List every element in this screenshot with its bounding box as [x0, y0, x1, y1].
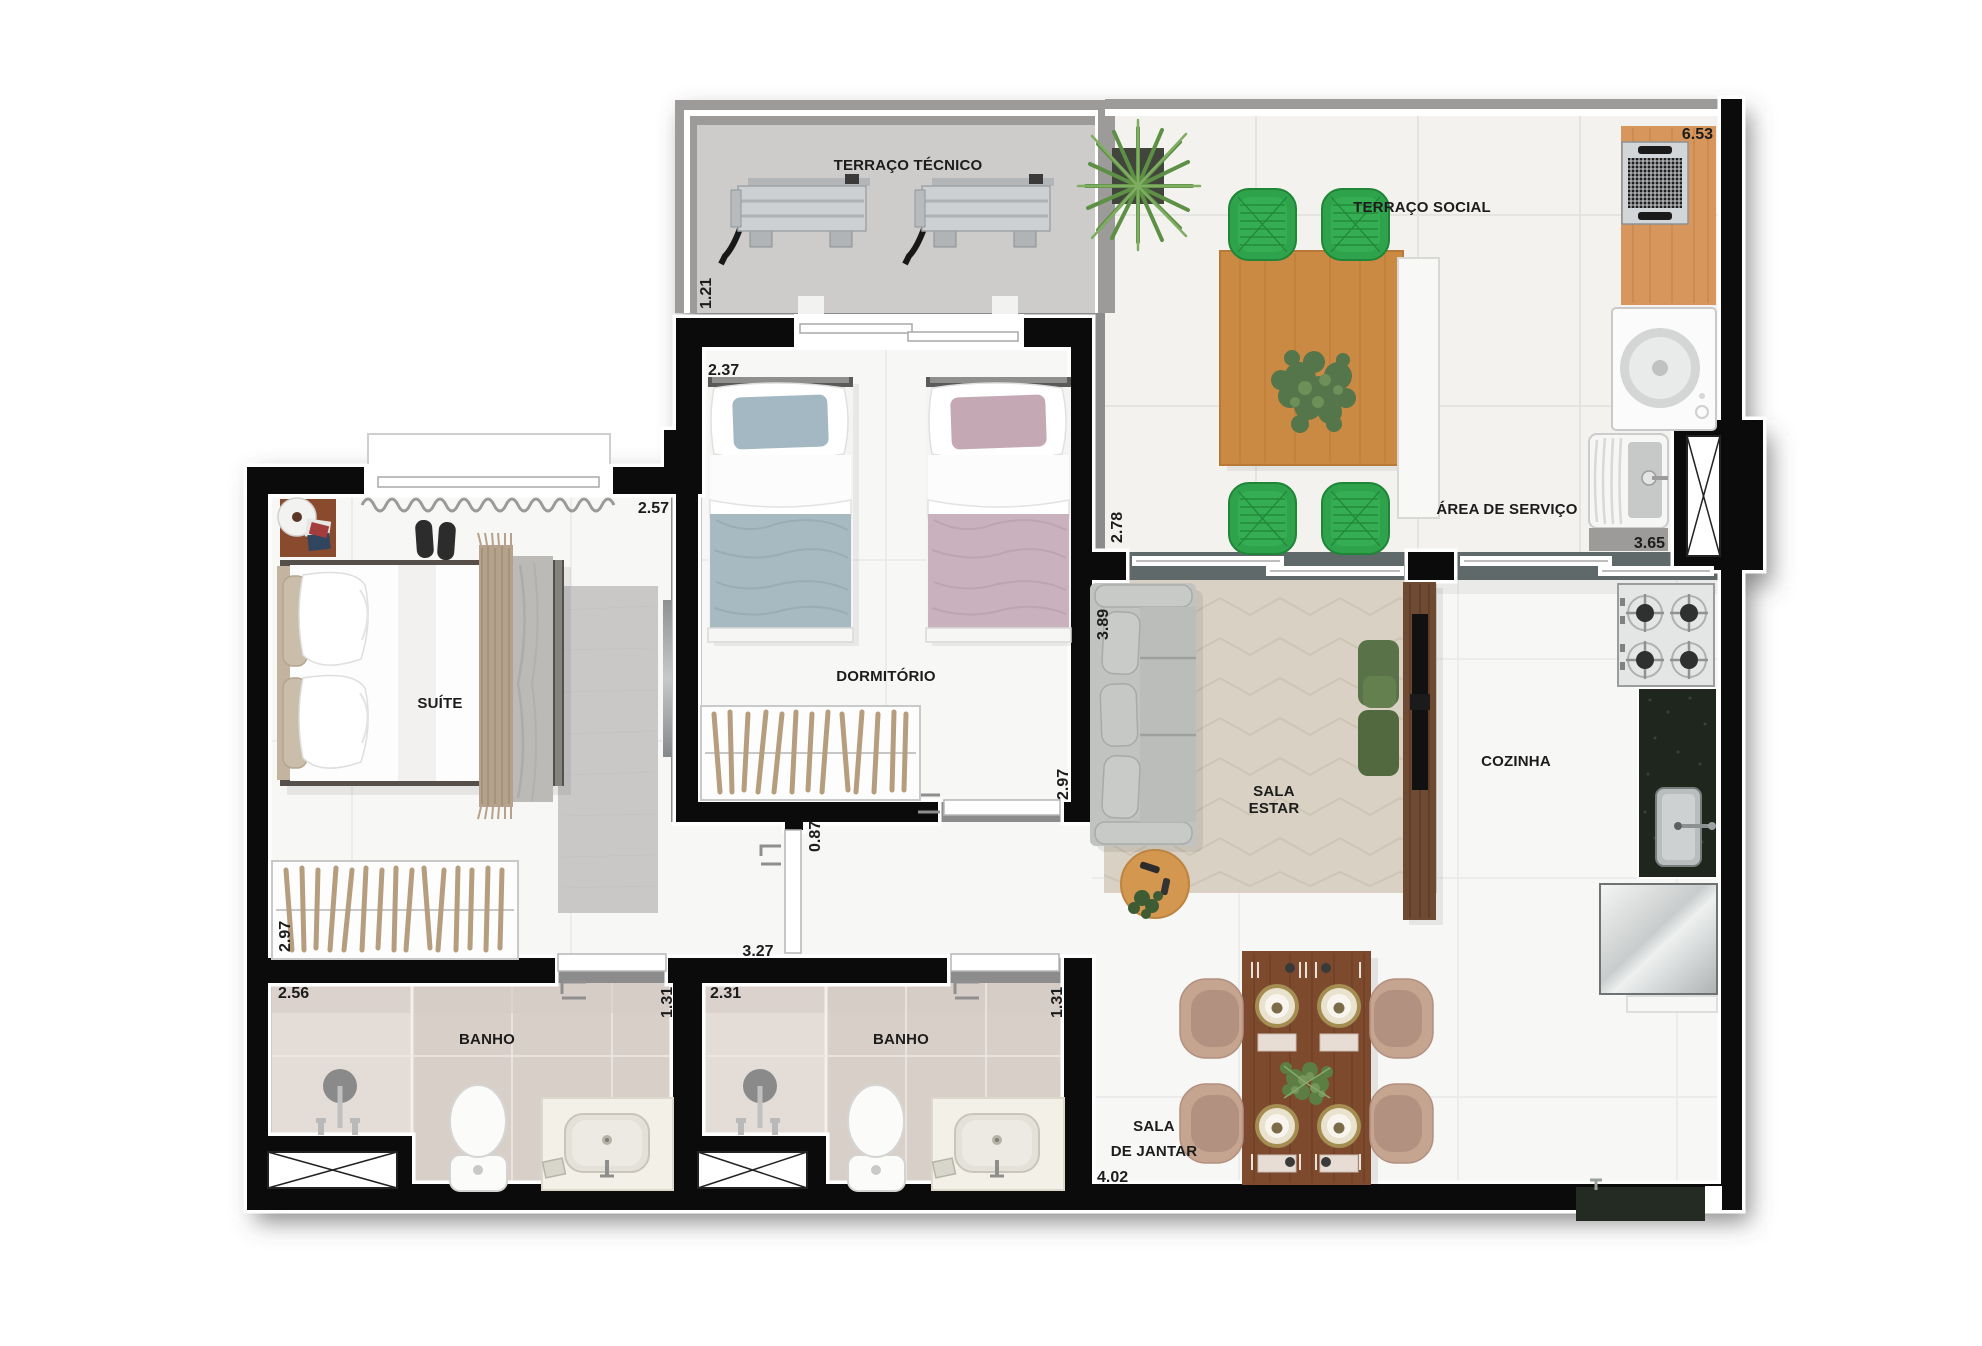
svg-text:3.27: 3.27 — [742, 943, 773, 960]
svg-text:3.65: 3.65 — [1634, 535, 1665, 552]
svg-text:2.57: 2.57 — [638, 500, 669, 517]
svg-text:2.97: 2.97 — [1055, 769, 1072, 800]
svg-text:ÁREA DE SERVIÇO: ÁREA DE SERVIÇO — [1436, 501, 1577, 518]
svg-text:1.21: 1.21 — [698, 278, 715, 309]
svg-text:2.78: 2.78 — [1109, 512, 1126, 543]
svg-text:2.97: 2.97 — [277, 921, 294, 952]
svg-text:3.89: 3.89 — [1095, 609, 1112, 640]
svg-text:4.02: 4.02 — [1097, 1169, 1128, 1186]
svg-text:DORMITÓRIO: DORMITÓRIO — [836, 667, 936, 685]
svg-text:SALA: SALA — [1253, 783, 1295, 800]
svg-text:ESTAR: ESTAR — [1249, 800, 1300, 817]
svg-text:TERRAÇO TÉCNICO: TERRAÇO TÉCNICO — [834, 157, 983, 174]
svg-text:DE JANTAR: DE JANTAR — [1111, 1143, 1198, 1160]
svg-text:6.53: 6.53 — [1682, 126, 1713, 143]
svg-text:TERRAÇO SOCIAL: TERRAÇO SOCIAL — [1353, 199, 1491, 216]
svg-text:SALA: SALA — [1133, 1118, 1175, 1135]
svg-text:BANHO: BANHO — [873, 1031, 929, 1048]
svg-text:2.31: 2.31 — [710, 985, 741, 1002]
svg-text:BANHO: BANHO — [459, 1031, 515, 1048]
svg-text:0.87: 0.87 — [807, 821, 824, 852]
svg-text:SUÍTE: SUÍTE — [417, 695, 462, 712]
svg-text:2.56: 2.56 — [278, 985, 309, 1002]
svg-text:COZINHA: COZINHA — [1481, 753, 1551, 770]
svg-text:1.31: 1.31 — [659, 987, 676, 1018]
svg-text:2.37: 2.37 — [708, 362, 739, 379]
svg-text:1.31: 1.31 — [1049, 987, 1066, 1018]
